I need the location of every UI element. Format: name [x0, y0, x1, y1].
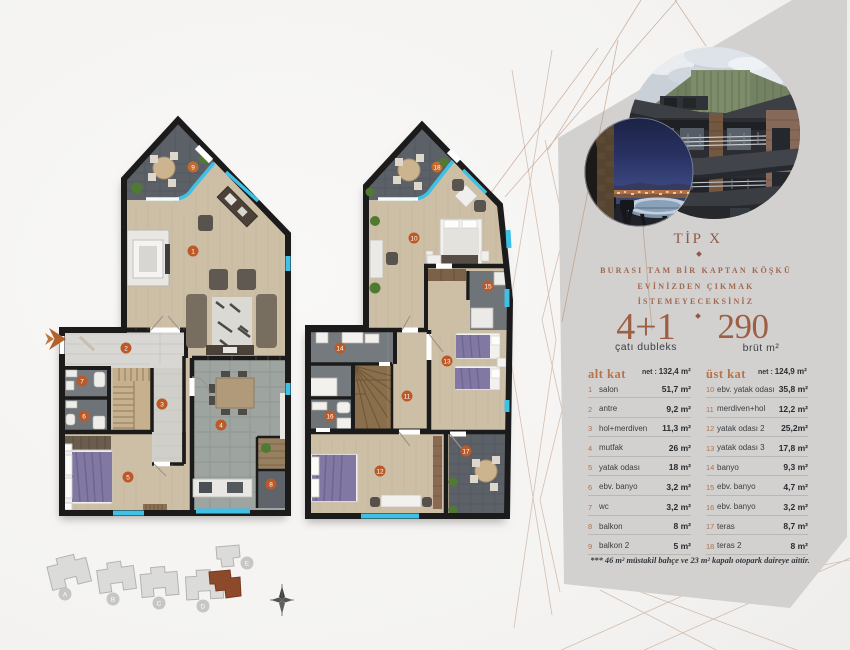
svg-text:C: C	[157, 601, 162, 608]
svg-text:7: 7	[80, 379, 84, 386]
svg-text:8: 8	[269, 482, 273, 489]
svg-text:16: 16	[326, 414, 334, 421]
svg-text:18: 18	[433, 165, 441, 172]
svg-text:13: 13	[443, 359, 451, 366]
svg-text:6: 6	[82, 414, 86, 421]
svg-text:9: 9	[191, 165, 195, 172]
svg-text:D: D	[201, 604, 206, 611]
svg-text:4: 4	[219, 423, 223, 430]
svg-text:12: 12	[376, 469, 384, 476]
svg-text:11: 11	[404, 394, 411, 401]
svg-text:3: 3	[160, 402, 164, 409]
svg-text:17: 17	[462, 449, 470, 456]
svg-text:10: 10	[410, 236, 418, 243]
svg-text:1: 1	[191, 249, 195, 256]
svg-text:A: A	[63, 592, 68, 599]
svg-text:2: 2	[124, 346, 128, 353]
svg-text:15: 15	[484, 284, 492, 291]
svg-text:5: 5	[126, 475, 130, 482]
svg-text:E: E	[245, 561, 250, 568]
svg-text:14: 14	[336, 346, 344, 353]
svg-text:B: B	[111, 597, 115, 604]
